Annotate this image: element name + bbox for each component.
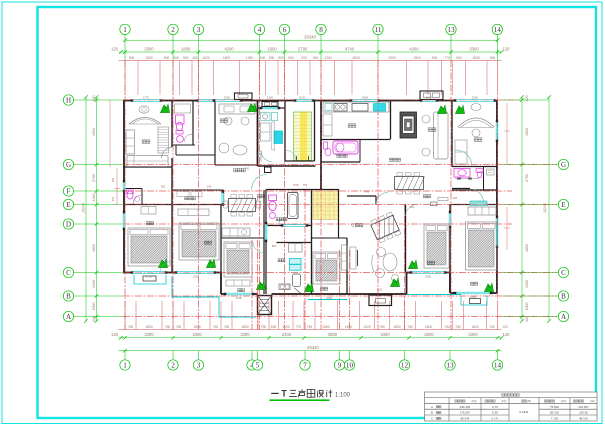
svg-text:1990: 1990 — [388, 56, 396, 60]
svg-text:1: 1 — [123, 26, 127, 34]
svg-text:240: 240 — [207, 185, 212, 189]
svg-text:900: 900 — [365, 190, 370, 194]
svg-text:5: 5 — [256, 362, 260, 370]
svg-text:1020: 1020 — [202, 56, 210, 60]
svg-text:900: 900 — [410, 205, 415, 209]
svg-text:14: 14 — [494, 362, 502, 370]
svg-text:1500: 1500 — [345, 325, 353, 329]
svg-text:3300: 3300 — [144, 46, 154, 51]
svg-text:26340: 26340 — [307, 345, 319, 350]
svg-text:101.627: 101.627 — [578, 405, 589, 409]
svg-text:6.29: 6.29 — [492, 411, 498, 415]
svg-text:(m²): (m²) — [561, 399, 566, 403]
svg-text:2680: 2680 — [362, 95, 369, 99]
svg-text:1940: 1940 — [426, 95, 433, 99]
svg-text:1500: 1500 — [92, 303, 96, 311]
svg-text:1500: 1500 — [377, 288, 383, 292]
svg-text:2350: 2350 — [470, 295, 477, 299]
svg-text:630: 630 — [271, 325, 277, 329]
svg-text:2600: 2600 — [424, 332, 434, 337]
svg-text:1500: 1500 — [413, 56, 421, 60]
svg-text:G: G — [561, 161, 566, 169]
svg-text:750: 750 — [489, 325, 495, 329]
svg-text:3: 3 — [197, 362, 201, 370]
svg-text:4800: 4800 — [525, 244, 529, 252]
svg-text:T: T — [281, 389, 287, 399]
svg-text:400: 400 — [260, 56, 266, 60]
svg-text:1340: 1340 — [92, 194, 96, 202]
svg-text:750: 750 — [455, 325, 461, 329]
svg-text:6: 6 — [283, 26, 287, 34]
svg-text:98.101: 98.101 — [579, 416, 588, 420]
svg-text:2: 2 — [171, 26, 175, 34]
svg-text:82.216: 82.216 — [550, 411, 559, 415]
svg-text:3300: 3300 — [240, 332, 250, 337]
svg-text:1560: 1560 — [322, 325, 330, 329]
svg-text:14: 14 — [494, 26, 502, 34]
svg-text:1500: 1500 — [267, 95, 274, 99]
svg-text:1500: 1500 — [472, 56, 480, 60]
svg-text:750: 750 — [303, 183, 308, 187]
svg-text:9: 9 — [338, 362, 342, 370]
svg-text:2080: 2080 — [224, 95, 231, 99]
svg-text:900: 900 — [111, 177, 115, 182]
svg-text:0.2441: 0.2441 — [519, 410, 529, 414]
svg-text:3300: 3300 — [380, 332, 390, 337]
svg-text:1800: 1800 — [181, 46, 191, 51]
svg-text:120: 120 — [503, 332, 511, 337]
svg-text:750: 750 — [176, 325, 182, 329]
svg-text:900: 900 — [301, 56, 307, 60]
svg-text:3300: 3300 — [468, 332, 478, 337]
svg-text:120.81: 120.81 — [579, 411, 588, 415]
svg-text:2350: 2350 — [425, 275, 432, 279]
svg-text:1: 1 — [123, 362, 127, 370]
svg-text:2700: 2700 — [525, 174, 529, 182]
svg-text:13: 13 — [446, 362, 454, 370]
svg-text:4: 4 — [258, 26, 262, 34]
svg-text:770: 770 — [444, 56, 450, 60]
svg-text:26340: 26340 — [304, 35, 316, 40]
svg-text:196.155: 196.155 — [460, 405, 471, 409]
svg-text:C: C — [561, 269, 566, 277]
svg-text:85.544: 85.544 — [461, 416, 470, 420]
svg-text:1000: 1000 — [282, 325, 290, 329]
svg-text:1020: 1020 — [363, 325, 371, 329]
svg-text:750: 750 — [261, 325, 267, 329]
svg-text:7: 7 — [303, 362, 307, 370]
svg-text:B: B — [431, 411, 433, 415]
svg-text:4740: 4740 — [345, 46, 355, 51]
svg-text:900: 900 — [164, 56, 170, 60]
svg-text:1800: 1800 — [236, 296, 243, 300]
svg-text:900: 900 — [161, 185, 166, 189]
svg-text:750: 750 — [165, 325, 171, 329]
svg-text:750: 750 — [224, 325, 230, 329]
svg-text:1800: 1800 — [471, 325, 479, 329]
svg-text:6.76: 6.76 — [492, 405, 498, 409]
svg-text:750: 750 — [307, 325, 313, 329]
svg-text:450: 450 — [192, 56, 198, 60]
svg-text:120: 120 — [525, 96, 529, 102]
svg-text:120: 120 — [111, 46, 119, 51]
svg-text:900: 900 — [288, 56, 294, 60]
svg-text:770: 770 — [296, 325, 302, 329]
svg-text:6.171: 6.171 — [491, 416, 499, 420]
svg-text:B: B — [561, 293, 566, 301]
svg-text:4200: 4200 — [224, 46, 234, 51]
svg-text:900: 900 — [490, 56, 496, 60]
svg-text:400: 400 — [111, 196, 115, 201]
svg-text:120: 120 — [92, 316, 96, 322]
svg-text:C: C — [431, 416, 433, 420]
svg-text:120: 120 — [525, 316, 529, 322]
svg-text:4500: 4500 — [525, 128, 529, 136]
svg-text:8: 8 — [319, 26, 323, 34]
svg-text:D: D — [66, 221, 71, 229]
svg-text:G: G — [66, 161, 71, 169]
svg-text:176.257: 176.257 — [460, 411, 471, 415]
svg-text:10: 10 — [346, 362, 354, 370]
svg-text:750: 750 — [379, 325, 385, 329]
svg-text:A: A — [66, 313, 71, 321]
svg-text:120: 120 — [503, 46, 511, 51]
svg-text:1775: 1775 — [143, 95, 150, 99]
svg-text:7.135: 7.135 — [551, 416, 559, 420]
svg-text:E: E — [561, 201, 565, 209]
svg-text:1800: 1800 — [326, 296, 333, 300]
svg-text:B: B — [66, 293, 71, 301]
svg-text:4800: 4800 — [92, 244, 96, 252]
svg-text:(m²): (m²) — [590, 399, 595, 403]
svg-text:900: 900 — [129, 56, 135, 60]
svg-text:13: 13 — [447, 26, 455, 34]
svg-text:1380: 1380 — [246, 56, 254, 60]
svg-text:A: A — [561, 313, 566, 321]
svg-text:120: 120 — [502, 325, 508, 329]
svg-text:(m²): (m²) — [472, 399, 477, 403]
svg-text:4260: 4260 — [409, 46, 419, 51]
svg-text:2700: 2700 — [92, 174, 96, 182]
svg-text:2600: 2600 — [352, 56, 360, 60]
svg-text:1800: 1800 — [193, 325, 201, 329]
svg-text:2400: 2400 — [282, 332, 292, 337]
svg-text:750: 750 — [407, 325, 413, 329]
svg-text:450: 450 — [173, 56, 179, 60]
svg-text:3: 3 — [197, 26, 201, 34]
svg-text:120: 120 — [92, 96, 96, 102]
svg-text:15240: 15240 — [82, 203, 86, 213]
svg-text:900: 900 — [453, 196, 458, 200]
svg-text:800: 800 — [272, 244, 277, 248]
svg-text:750: 750 — [213, 325, 219, 329]
svg-text:2600: 2600 — [472, 95, 479, 99]
svg-text:3300: 3300 — [144, 332, 154, 337]
svg-text:900: 900 — [183, 56, 189, 60]
svg-text:C: C — [66, 269, 71, 277]
svg-text:11: 11 — [375, 26, 382, 34]
svg-text:3300: 3300 — [469, 46, 479, 51]
svg-text:A: A — [431, 405, 433, 409]
svg-text:1800: 1800 — [425, 325, 433, 329]
svg-text:500: 500 — [278, 56, 284, 60]
svg-text:H: H — [66, 97, 71, 105]
svg-text:3900: 3900 — [328, 332, 338, 337]
svg-text:E: E — [66, 201, 70, 209]
svg-text:2350: 2350 — [146, 275, 153, 279]
svg-text:1500: 1500 — [293, 183, 299, 187]
svg-text:F: F — [67, 188, 71, 196]
svg-text:2700: 2700 — [298, 46, 308, 51]
svg-text:2020: 2020 — [299, 95, 306, 99]
svg-text:900: 900 — [432, 56, 438, 60]
svg-text:1800: 1800 — [241, 325, 249, 329]
svg-text:C: C — [351, 223, 354, 228]
svg-text:1800: 1800 — [223, 56, 231, 60]
svg-text:900: 900 — [456, 56, 462, 60]
svg-text:1200: 1200 — [324, 56, 332, 60]
svg-text:1800: 1800 — [267, 46, 277, 51]
svg-text:1500: 1500 — [92, 280, 96, 288]
svg-text:12: 12 — [401, 362, 409, 370]
svg-text:1:100: 1:100 — [335, 393, 351, 399]
svg-text:(%): (%) — [527, 399, 531, 403]
svg-text:4500: 4500 — [92, 128, 96, 136]
svg-text:2: 2 — [171, 362, 175, 370]
svg-text:940: 940 — [313, 56, 319, 60]
svg-text:3300: 3300 — [192, 332, 202, 337]
svg-text:1800: 1800 — [145, 325, 153, 329]
svg-text:900: 900 — [245, 167, 250, 171]
svg-text:1500: 1500 — [525, 280, 529, 288]
svg-text:1800: 1800 — [393, 325, 401, 329]
svg-text:75.802: 75.802 — [550, 405, 559, 409]
svg-text:1500: 1500 — [145, 56, 153, 60]
svg-text:120: 120 — [111, 332, 119, 337]
svg-text:750: 750 — [128, 325, 134, 329]
svg-text:(m²): (m²) — [502, 399, 507, 403]
svg-text:750: 750 — [444, 325, 450, 329]
svg-text:900: 900 — [269, 56, 275, 60]
svg-text:1500: 1500 — [525, 303, 529, 311]
